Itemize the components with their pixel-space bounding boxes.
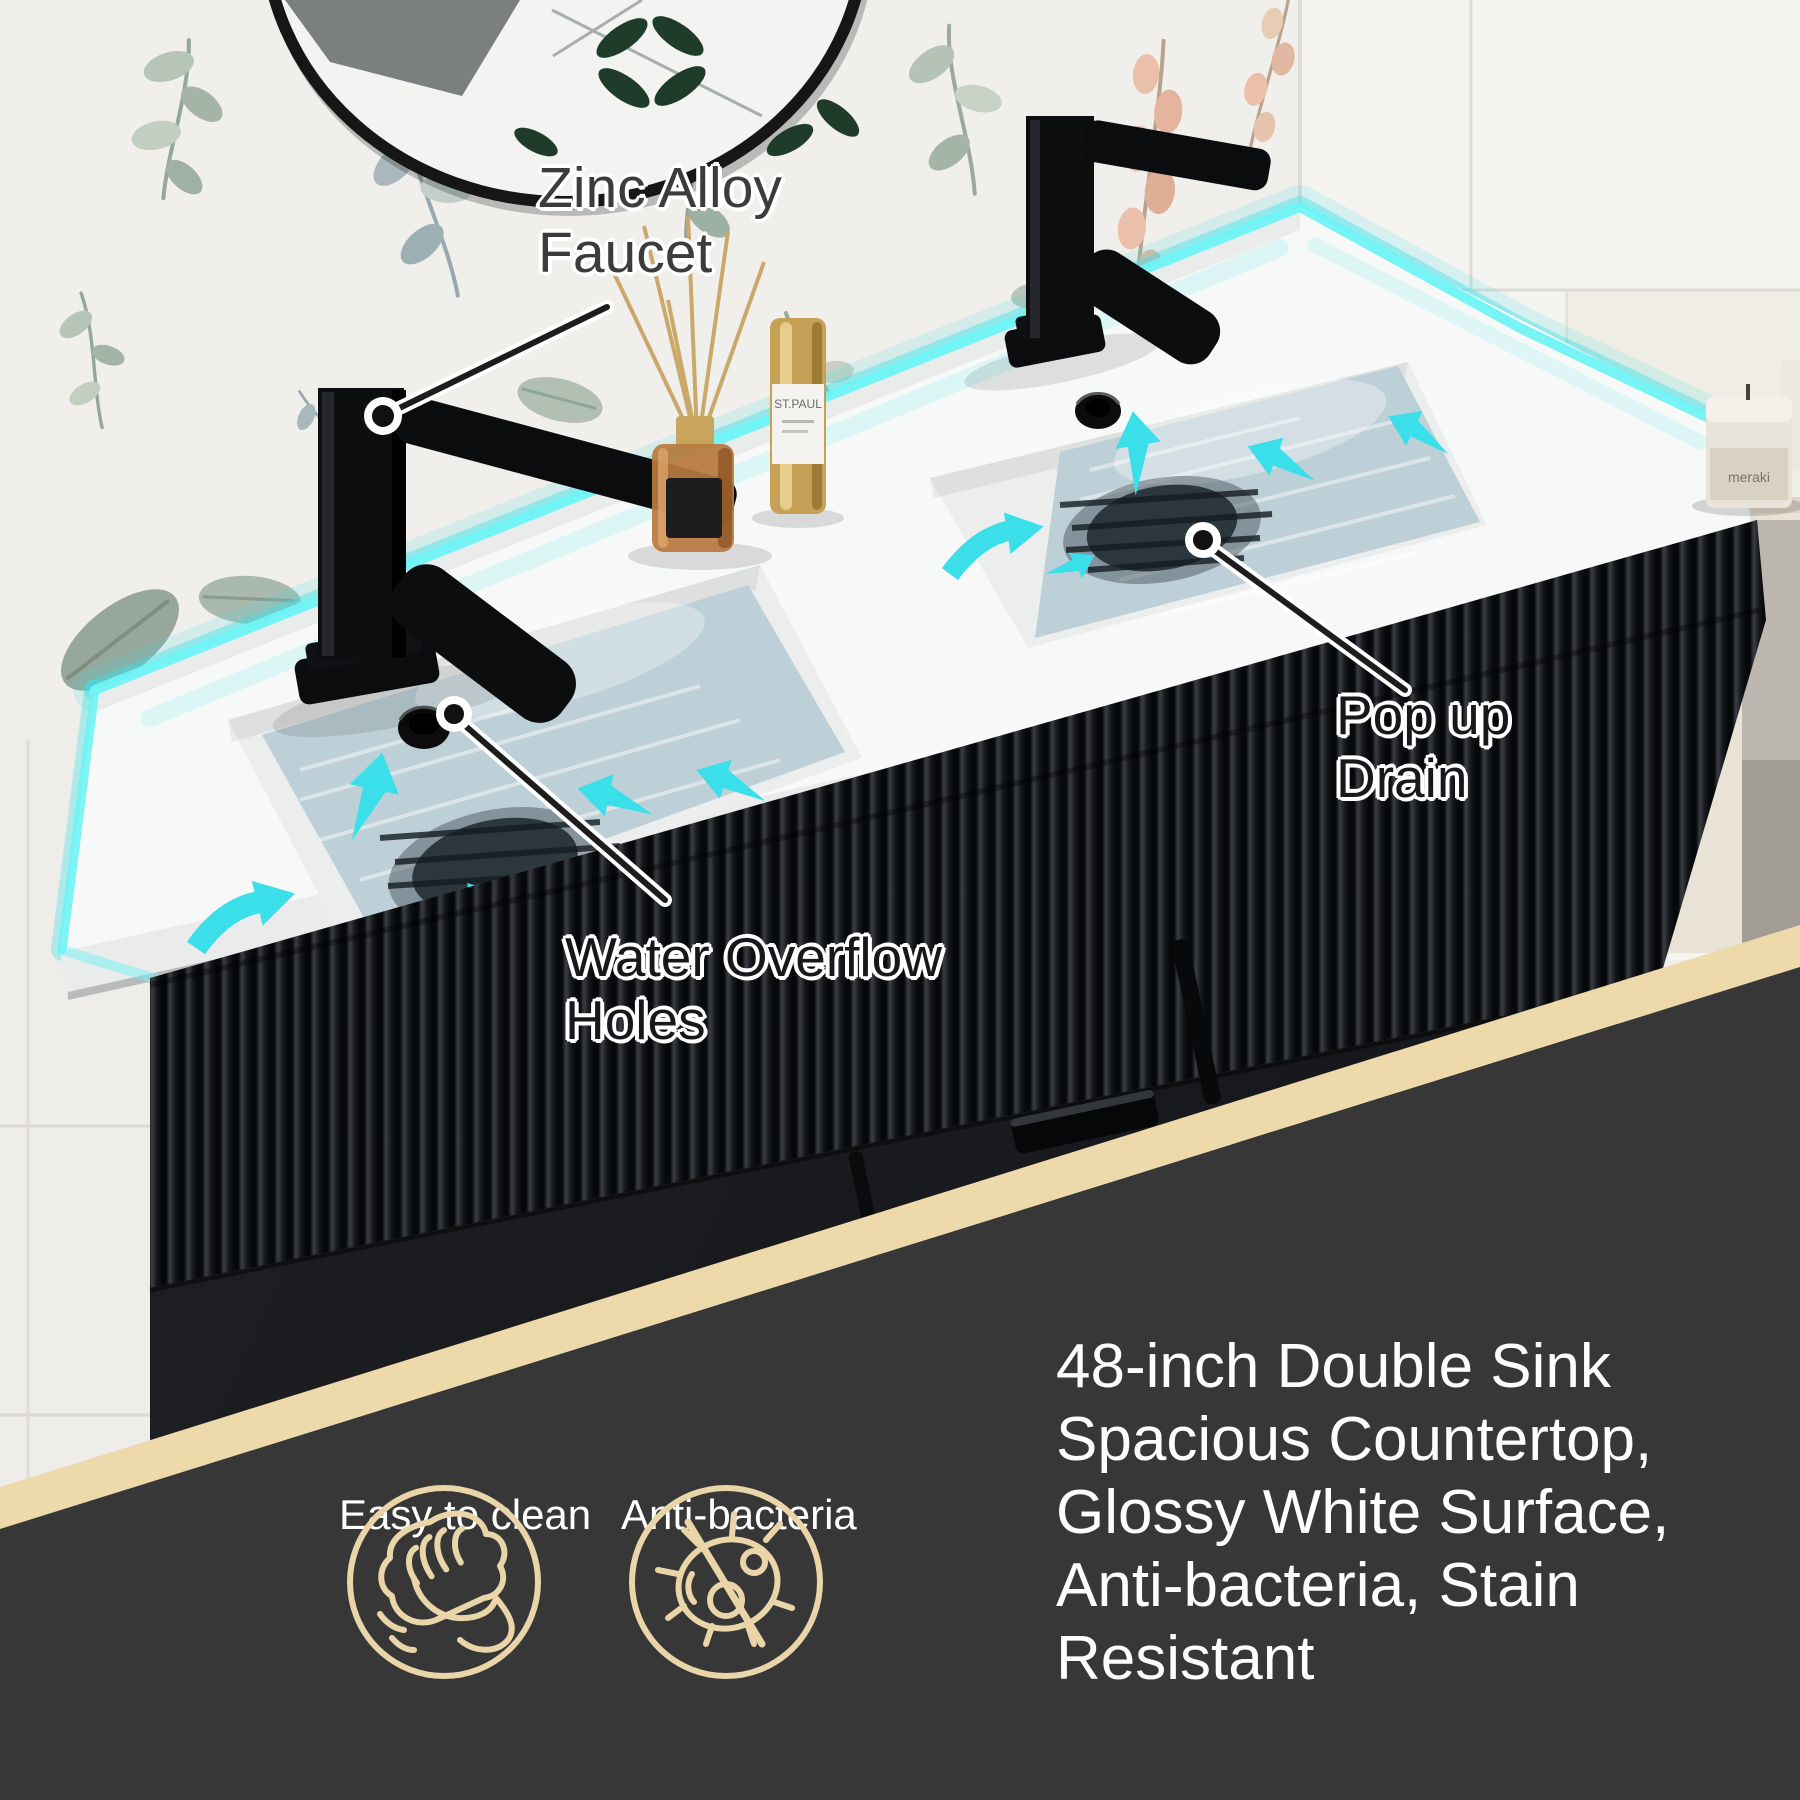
callout-water-overflow-holes: Water Overflow Holes	[565, 926, 942, 1051]
callout-text: Water Overflow	[565, 926, 942, 989]
badge-anti-bacteria: Anti-bacteria	[621, 1477, 831, 1539]
callout-text: Faucet	[538, 221, 782, 286]
feature-description: 48-inch Double Sink Spacious Countertop,…	[1056, 1330, 1669, 1695]
no-bacteria-icon	[621, 1477, 831, 1687]
callout-text: Zinc Alloy	[538, 156, 782, 221]
feature-line: 48-inch Double Sink	[1056, 1330, 1669, 1403]
callout-text: Pop up	[1336, 684, 1510, 747]
callout-pop-up-drain: Pop up Drain	[1336, 684, 1510, 809]
feature-line: Spacious Countertop,	[1056, 1403, 1669, 1476]
callout-leader-drain	[1185, 522, 1405, 690]
callout-zinc-alloy-faucet: Zinc Alloy Faucet	[538, 156, 782, 286]
callout-text: Holes	[565, 989, 942, 1052]
wipe-hand-icon	[339, 1477, 549, 1687]
callout-text: Drain	[1336, 747, 1510, 810]
callout-leader-overflow	[436, 696, 665, 900]
feature-line: Anti-bacteria, Stain	[1056, 1549, 1669, 1622]
feature-line: Glossy White Surface,	[1056, 1476, 1669, 1549]
product-infographic: ST.PAUL meraki	[0, 0, 1800, 1800]
callout-leader-faucet	[364, 307, 607, 435]
badge-easy-to-clean: Easy to clean	[339, 1477, 549, 1539]
feature-line: Resistant	[1056, 1622, 1669, 1695]
